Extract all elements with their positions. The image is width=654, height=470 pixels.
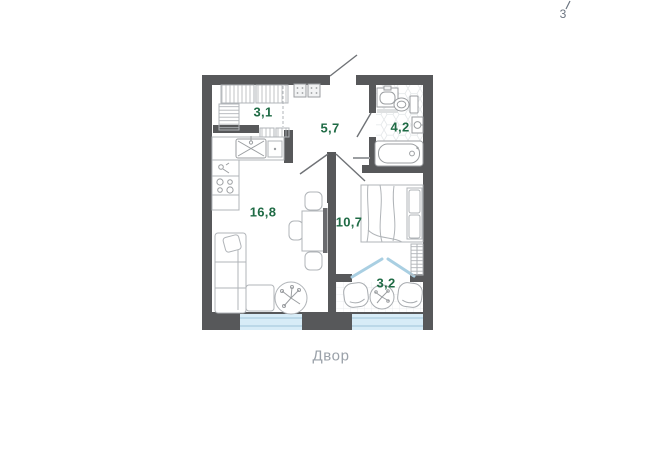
floorplan-page: 3,1 5,7 4,2 16,8 10,7 3,2 Двор 3: [0, 0, 654, 470]
plant-rug-icon: [275, 282, 307, 314]
stove-icon: [212, 176, 239, 195]
chair: [289, 221, 303, 240]
window-living-room: [240, 314, 302, 330]
window-balcony: [352, 314, 423, 330]
bathtub-icon: [375, 141, 423, 166]
wall-left: [202, 75, 212, 330]
hallway-shafts: [294, 84, 320, 97]
kitchen-faucet-cabinet: [212, 160, 239, 176]
bedroom-wardrobe-icon: [411, 244, 423, 275]
bed: [361, 185, 423, 242]
kitchen-sink-icon: [236, 136, 266, 158]
shaft-box-icon: [294, 84, 306, 97]
balcony-glazing: [352, 259, 414, 277]
bed-pillow-icon: [409, 215, 420, 238]
closet-shelf-icon: [276, 128, 289, 137]
shaft-box-icon: [308, 84, 320, 97]
room-area-bathroom: 4,2: [391, 120, 410, 135]
wall-right: [423, 75, 433, 330]
room-area-hallway: 5,7: [321, 121, 340, 136]
closet-shelf-icon: [260, 128, 274, 137]
closet-rail-icon: [219, 104, 239, 130]
wall-top-right: [356, 75, 433, 85]
room-area-kitchen-living: 16,8: [250, 205, 277, 220]
tv-icon: [323, 208, 328, 253]
floor-indicator: 3: [560, 7, 567, 21]
room-area-balcony: 3,2: [377, 276, 396, 291]
balcony-chair: [397, 282, 424, 309]
kitchen-furniture: [212, 136, 284, 210]
entrance-door-swing: [330, 55, 357, 76]
chair: [305, 252, 322, 270]
wall-bath-left-upper: [369, 85, 376, 113]
closet-rail-icon: [221, 85, 254, 103]
kitchen-counter-lower: [212, 195, 239, 210]
dining-set: [289, 192, 326, 270]
room-area-wardrobe: 3,1: [254, 105, 273, 120]
courtyard-label: Двор: [312, 348, 349, 365]
chair: [305, 192, 322, 210]
small-sink-icon: [412, 117, 423, 133]
balcony-chair: [343, 282, 370, 309]
room-area-bedroom: 10,7: [336, 215, 363, 230]
bed-pillow-icon: [409, 190, 420, 213]
sofa: [215, 233, 274, 313]
wall-hall-pillar: [327, 152, 336, 203]
kitchen-door-swing: [300, 154, 328, 174]
floorplan-drawing: [0, 0, 654, 470]
wall-balcony-left-stub: [336, 274, 352, 282]
dining-table: [302, 211, 326, 251]
bathroom-door-swing: [357, 113, 371, 137]
